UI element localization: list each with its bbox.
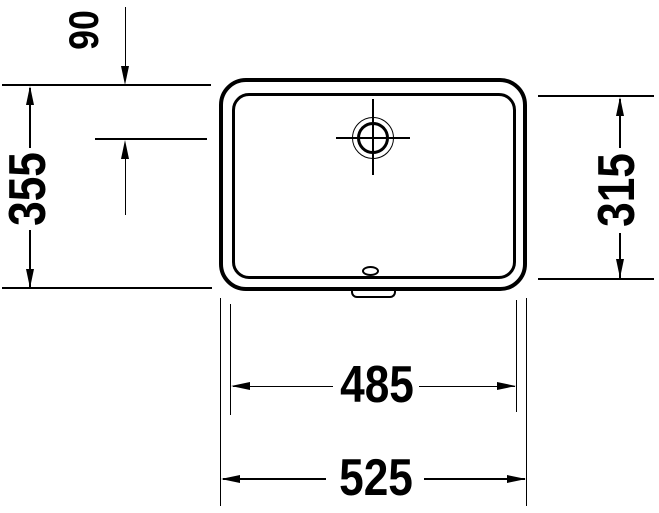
dim-90-upper-tail	[125, 7, 126, 67]
extension-line-inner-top	[538, 95, 654, 96]
dim-label-355: 355	[1, 130, 55, 249]
extension-line-inner-left	[230, 304, 231, 415]
extension-line-inner-bottom	[538, 278, 654, 279]
extension-line-drain-center	[95, 138, 207, 139]
dim-485-right-arrowhead	[497, 382, 516, 390]
technical-drawing-canvas: 90 355 315 485 525	[0, 0, 659, 513]
dim-355-down-arrowhead	[26, 269, 34, 288]
drain-inner-circle	[357, 122, 389, 154]
dim-label-485: 485	[309, 358, 445, 412]
overflow-hole	[362, 266, 379, 276]
dim-90-down-arrowhead	[121, 66, 129, 85]
extension-line-basin-bottom	[2, 287, 212, 288]
dim-label-315: 315	[590, 131, 644, 250]
dim-90-lower-tail	[125, 158, 126, 215]
dim-525-right-arrowhead	[507, 475, 526, 483]
dim-315-down-arrowhead	[616, 259, 624, 278]
extension-line-inner-right	[516, 300, 517, 412]
dim-90-up-arrowhead	[121, 140, 129, 159]
extension-line-outer-right	[526, 298, 527, 506]
dim-label-90: 90	[62, 0, 106, 80]
dim-label-525: 525	[308, 451, 444, 505]
